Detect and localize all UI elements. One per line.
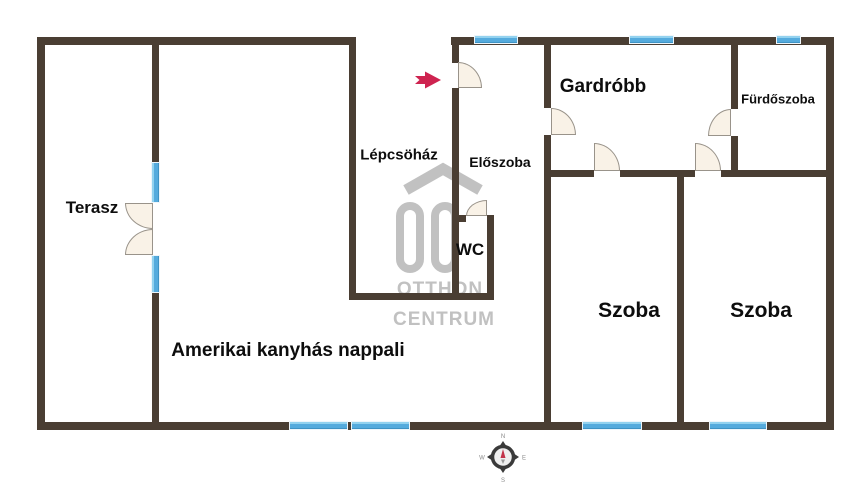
room-label-terasz: Terasz: [66, 198, 119, 218]
room-label-szoba-left: Szoba: [598, 299, 660, 323]
room-label-furdoszoba: Fürdőszoba: [741, 92, 815, 107]
room-label-wc: WC: [456, 240, 484, 260]
room-label-szoba-right: Szoba: [730, 299, 792, 323]
compass-south-label: S: [501, 478, 505, 484]
compass-east-label: E: [522, 456, 526, 462]
compass-icon: N S W E: [478, 430, 528, 486]
floor-plan: OTTHON CENTRUM TeraszLépcsöházElőszobaGa…: [0, 0, 854, 500]
compass-north-label: N: [501, 434, 505, 440]
room-label-eloszoba: Előszoba: [469, 154, 530, 170]
room-label-nappali: Amerikai kanyhás nappali: [171, 340, 404, 362]
compass-west-label: W: [479, 456, 485, 462]
room-label-gardrob: Gardróbb: [560, 76, 647, 98]
room-label-lepcsohaz: Lépcsöház: [360, 147, 438, 164]
room-labels: TeraszLépcsöházElőszobaGardróbbFürdőszob…: [0, 0, 854, 500]
